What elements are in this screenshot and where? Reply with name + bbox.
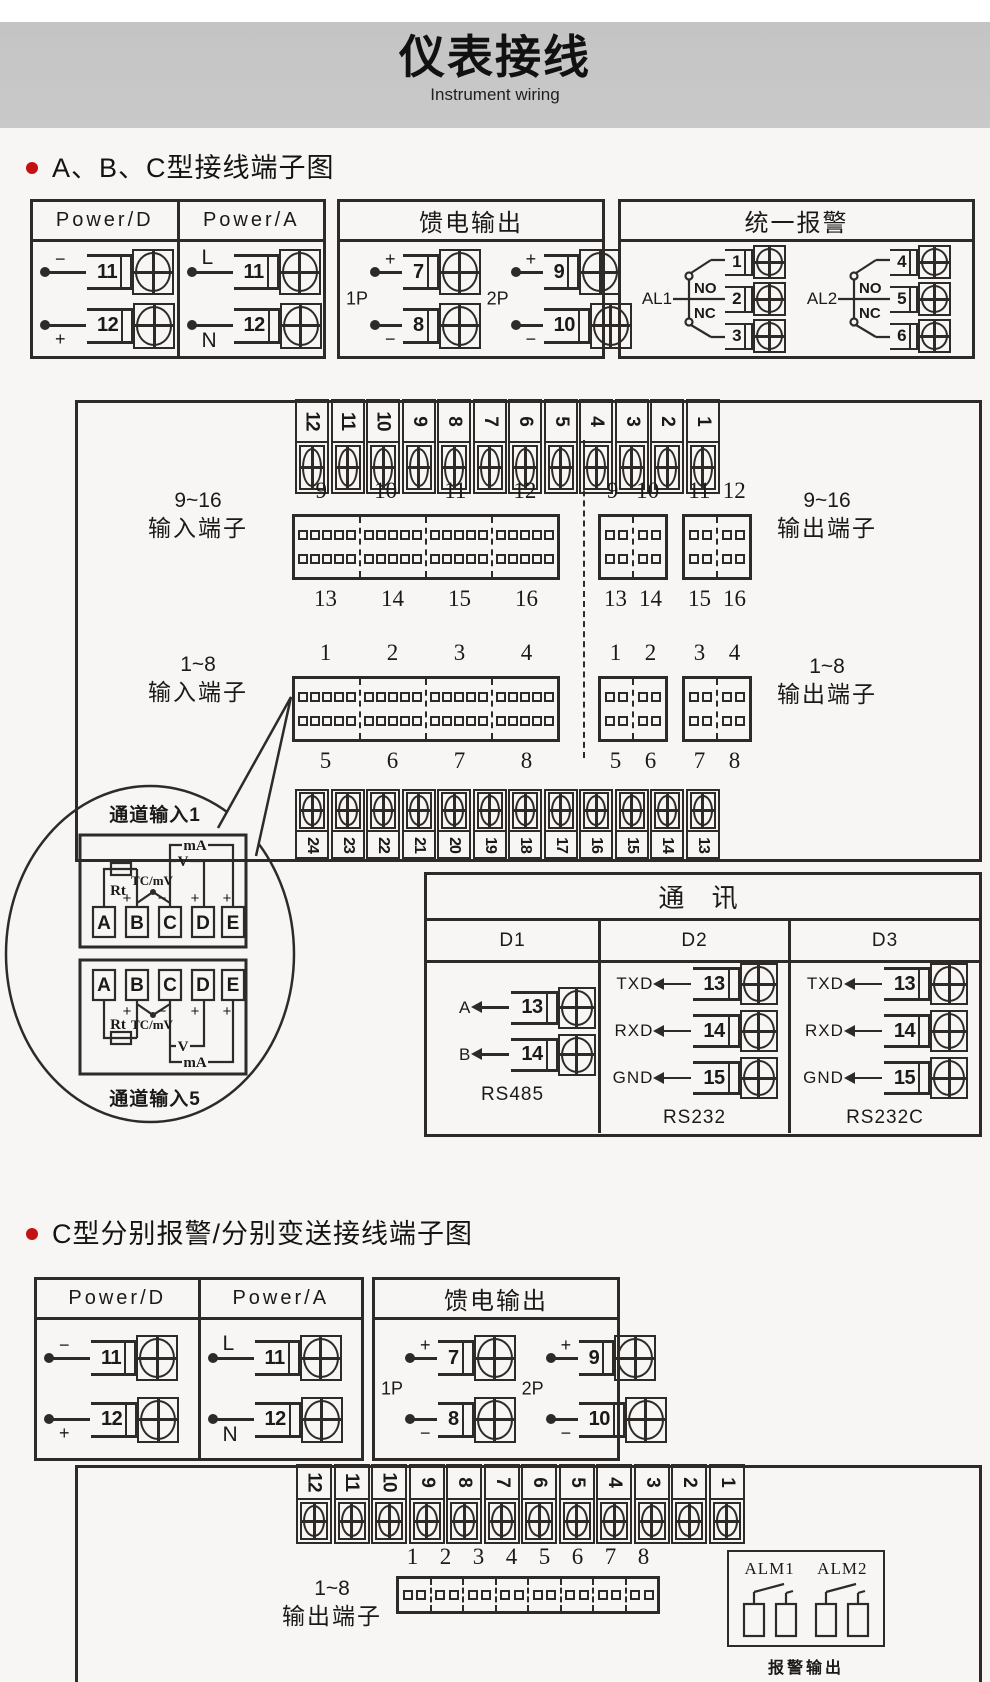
connector-pin	[689, 554, 699, 564]
group-tag: 2P	[487, 289, 509, 310]
connector-pin	[735, 716, 745, 726]
input-connector-9-16	[292, 514, 560, 580]
connector-pin	[514, 1590, 524, 1600]
power-a-column: L 11 N 12	[180, 242, 324, 356]
terminal-number: 12	[298, 1466, 330, 1500]
connector-pin	[478, 716, 488, 726]
screw-icon	[753, 319, 786, 353]
wire: L	[189, 271, 233, 274]
output-label-9-16: 9~16 输出端子	[742, 488, 912, 543]
terminal-bars	[918, 1017, 930, 1045]
connector-pin	[532, 554, 542, 564]
connector-pin	[500, 1590, 510, 1600]
strip-terminal: 16	[579, 789, 613, 859]
signal-label: TXD	[802, 974, 844, 994]
divider-dashed	[583, 440, 585, 758]
terminal-bars	[918, 1064, 930, 1092]
comm-d1: A13 B14 RS485	[427, 963, 601, 1133]
screw-icon	[510, 791, 540, 830]
terminal-number: 12	[91, 1408, 125, 1431]
comm-col-d1: D1	[427, 921, 601, 960]
bullet-icon	[26, 162, 38, 174]
connector-pin	[508, 716, 518, 726]
connector-pin	[346, 554, 356, 564]
signal-label: GND	[802, 1068, 844, 1088]
terminal-bars	[602, 1343, 614, 1373]
output-label-1-8: 1~8 输出端子	[742, 654, 912, 709]
connector-pin	[442, 530, 452, 540]
connector-pin	[346, 692, 356, 702]
connector-pin	[400, 692, 410, 702]
connector-pin	[651, 692, 661, 702]
channel-terminal-letter: A	[97, 975, 111, 996]
connector-pin	[532, 716, 542, 726]
connector-pin	[722, 692, 732, 702]
connector-pin	[520, 716, 530, 726]
connector-section	[601, 517, 634, 577]
terminal-bars	[909, 288, 918, 311]
wire: L	[210, 1357, 254, 1360]
terminal: 3	[725, 323, 753, 350]
unified-alarm-box: 统一报警 AL1 NO NC 1	[618, 199, 975, 359]
feed-output-box-c: 馈电输出 1P + 7 − 8 2P + 9	[372, 1277, 620, 1461]
terminal: 11	[255, 1340, 300, 1376]
terminal: 2	[725, 286, 753, 313]
power-a-title: Power/A	[180, 202, 324, 239]
connector-pin	[466, 554, 476, 564]
connector-pin	[310, 716, 320, 726]
relay-name: ALM1	[745, 1559, 795, 1579]
terminal-number: 3	[694, 640, 706, 666]
screw-icon	[486, 1500, 518, 1542]
terminal-number: 13	[511, 996, 545, 1019]
signal-label: RXD	[802, 1021, 844, 1041]
channel-input-5-label: 通道输入5	[75, 1084, 235, 1111]
connector-pin	[334, 692, 344, 702]
connector-section	[427, 517, 493, 577]
terminal-bars	[462, 1343, 474, 1373]
terminal-number: 14	[511, 1043, 545, 1066]
strip-terminal: 20	[437, 789, 471, 859]
connector-pin	[346, 716, 356, 726]
terminal-number: 1	[610, 640, 622, 666]
channel-terminal-letter: B	[130, 913, 144, 934]
terminal-number: 13	[693, 973, 727, 996]
comm-col-d3: D3	[791, 921, 979, 960]
connector-pin	[689, 530, 699, 540]
connector-pin	[702, 530, 712, 540]
strip-terminal: 7	[484, 1464, 520, 1544]
comm-d3: TXD13 RXD14 GND15 RS232C	[791, 963, 979, 1133]
terminal: 15	[693, 1061, 739, 1095]
terminal-number: 3	[636, 1466, 668, 1500]
terminal: 14	[884, 1014, 930, 1048]
terminal-bars	[578, 311, 590, 341]
terminal-row: L 11	[189, 249, 324, 295]
page-title: 仪表接线	[0, 30, 990, 85]
terminal-number: 11	[688, 478, 710, 504]
terminal-number: 7	[438, 1347, 462, 1370]
polarity-label: +	[123, 890, 132, 907]
comm-standard: RS232	[663, 1107, 726, 1129]
polarity-label: +	[223, 1003, 232, 1020]
screw-icon	[561, 1500, 593, 1542]
terminal-number: 5	[610, 748, 622, 774]
connector-pin	[412, 692, 422, 702]
wire-label: −	[385, 330, 396, 348]
terminal-bars	[728, 1017, 740, 1045]
terminal-number: 2	[645, 640, 657, 666]
label-line: 1~8	[272, 1576, 392, 1602]
connector-section	[685, 679, 718, 739]
feed-output-box: 馈电输出 1P + 7 − 8 2P + 9	[337, 199, 605, 359]
connector-pin	[388, 716, 398, 726]
connector-pin	[376, 530, 386, 540]
connector-pin	[430, 554, 440, 564]
relay-terminals: 1 2 3	[725, 245, 786, 353]
connector-pin	[364, 530, 374, 540]
label-line: 1~8	[742, 654, 912, 680]
terminal: 12	[234, 308, 280, 344]
wire: +	[548, 1357, 578, 1360]
pin-number-row: 78	[682, 748, 752, 774]
screw-icon	[918, 319, 951, 353]
pin-number-row: 12	[598, 640, 668, 666]
terminal-number: 15	[688, 586, 711, 612]
connector-pin	[546, 1590, 556, 1600]
power-box-body: − 11 + 12 L 11 N 12	[37, 1320, 361, 1458]
comm-standard: RS232C	[846, 1107, 924, 1129]
ma-label: mA	[183, 1055, 206, 1071]
terminal-number: 7	[605, 1544, 617, 1570]
tc-mv-label: TC/mV	[131, 1017, 174, 1032]
wire-label: −	[526, 330, 537, 348]
strip-terminal: 22	[366, 789, 400, 859]
strip-terminal: 15	[615, 789, 649, 859]
terminal-number: 8	[729, 748, 741, 774]
group-tag: 1P	[346, 289, 368, 310]
connector-pin	[651, 554, 661, 564]
terminal-number: 15	[693, 1067, 727, 1090]
connector-pin	[605, 554, 615, 564]
relay-al2: AL2 NO NC 4 5 6	[807, 245, 951, 353]
terminal-number: 6	[510, 401, 540, 443]
relay-al1: AL1 NO NC 1 2 3	[642, 245, 786, 353]
terminal: 5	[890, 286, 918, 313]
connector-pin	[364, 554, 374, 564]
alarm-output-caption: 报警输出	[727, 1654, 885, 1678]
screw-icon	[740, 1010, 778, 1052]
comm-d2: TXD13 RXD14 GND15 RS232	[601, 963, 791, 1133]
connector-pin	[478, 692, 488, 702]
terminal: 1	[725, 249, 753, 276]
terminal-number: 23	[333, 830, 363, 857]
connector-pin	[702, 692, 712, 702]
connector-pin	[638, 530, 648, 540]
connector-pin	[388, 554, 398, 564]
feed-group-2p: 2P + 9 − 10	[516, 1320, 667, 1458]
relay-contact-icon: NO NC	[673, 245, 725, 353]
terminal-number: 1	[711, 1466, 743, 1500]
connector-pin	[466, 692, 476, 702]
terminal-number: 13	[688, 830, 718, 857]
screw-icon	[132, 249, 174, 295]
terminal: 4	[890, 249, 918, 276]
wire-label: +	[420, 1336, 431, 1354]
terminal-number: 5	[539, 1544, 551, 1570]
wire-label: −	[561, 1424, 572, 1442]
connector-pin	[435, 1590, 445, 1600]
terminal-strip-bottom: 242322212019181716151413	[295, 789, 720, 859]
terminal-number: 16	[581, 830, 611, 857]
terminal-number: 22	[368, 830, 398, 857]
terminal: 8	[438, 1402, 474, 1438]
wire-label: −	[55, 250, 66, 268]
channel-terminal-letter: E	[227, 975, 240, 996]
connector-pin	[618, 716, 628, 726]
terminal-number: 10	[579, 1408, 613, 1431]
screw-icon	[439, 303, 481, 349]
terminal-number: 6	[523, 1466, 555, 1500]
feed-group-1p: 1P + 7 − 8	[340, 242, 481, 356]
power-box-header: Power/D Power/A	[33, 202, 323, 242]
terminal-number: 20	[439, 830, 469, 857]
wire: +	[513, 271, 543, 274]
unified-alarm-body: AL1 NO NC 1 2 3	[621, 242, 972, 356]
wire-label: N	[202, 330, 217, 351]
connector-pin	[638, 716, 648, 726]
terminal: 13	[693, 967, 739, 1001]
signal-label: RXD	[611, 1021, 653, 1041]
terminal-row: − 8	[372, 303, 481, 349]
terminal-bars	[267, 257, 279, 287]
comm-row: GND15	[802, 1057, 968, 1099]
feed-output-title: 馈电输出	[375, 1280, 617, 1320]
connector-pin	[532, 530, 542, 540]
terminal-row: + 9	[548, 1335, 667, 1381]
connector-pin	[532, 692, 542, 702]
relay-contact-icon: NO NC	[838, 245, 890, 353]
relay-tag: AL1	[642, 289, 672, 309]
connector-pin	[454, 692, 464, 702]
strip-terminal: 19	[473, 789, 507, 859]
strip-terminal: 2	[671, 1464, 707, 1544]
connector-pin	[298, 554, 308, 564]
connector-pin	[468, 1590, 478, 1600]
connector-pin	[430, 530, 440, 540]
connector-pin	[605, 692, 615, 702]
terminal: 7	[403, 254, 439, 290]
connector-pin	[508, 692, 518, 702]
arrow-left-icon	[657, 1030, 691, 1033]
terminal-number: 11	[91, 1347, 124, 1370]
v-label: V	[178, 1039, 189, 1055]
comm-row: A13	[429, 987, 595, 1029]
screw-icon	[137, 1397, 179, 1443]
terminal: 11	[234, 254, 279, 290]
header-band: 仪表接线 Instrument wiring	[0, 22, 990, 128]
wire: −	[407, 1418, 437, 1421]
channel-terminal-letter: B	[130, 975, 144, 996]
connector-pin	[618, 692, 628, 702]
alm2-relay: ALM2	[810, 1559, 874, 1638]
connector-pin	[520, 692, 530, 702]
wire: −	[42, 271, 86, 274]
wire: +	[42, 324, 86, 327]
connector-pin	[442, 554, 452, 564]
wire-label: L	[202, 247, 214, 268]
connector-pin	[644, 1590, 654, 1600]
comm-row: RXD14	[611, 1010, 777, 1052]
strip-terminal: 14	[650, 789, 684, 859]
terminal-bars	[288, 1343, 300, 1373]
terminal-number: 13	[314, 586, 337, 612]
screw-icon	[652, 791, 682, 830]
terminal-number: 2	[440, 1544, 452, 1570]
connector-section	[493, 517, 557, 577]
polarity-label: +	[191, 1003, 200, 1020]
connector-pin	[702, 554, 712, 564]
connector-pin	[322, 692, 332, 702]
terminal-bars	[427, 311, 439, 341]
terminal-number: 11	[336, 1466, 368, 1500]
strip-terminal: 17	[544, 789, 578, 859]
screw-icon	[614, 1335, 656, 1381]
connector-pin	[689, 692, 699, 702]
connector-pin	[702, 716, 712, 726]
screw-icon	[368, 791, 398, 830]
terminal-number: 6	[890, 326, 909, 346]
page-subtitle: Instrument wiring	[0, 85, 990, 105]
terminal-bars	[120, 257, 132, 287]
channel-terminal-letter: E	[227, 913, 240, 934]
terminal-bars	[909, 251, 918, 274]
connector-pin	[466, 716, 476, 726]
screw-icon	[404, 791, 434, 830]
unified-alarm-title: 统一报警	[621, 202, 972, 242]
feed-output-body: 1P + 7 − 8 2P + 9	[375, 1320, 617, 1458]
connector-pin	[310, 530, 320, 540]
strip-terminal: 5	[559, 1464, 595, 1544]
terminal-number: 4	[506, 1544, 518, 1570]
connector-pin	[442, 716, 452, 726]
connector-pin	[544, 530, 554, 540]
strip-terminal: 8	[446, 1464, 482, 1544]
connector-pin	[508, 530, 518, 540]
connector-pin	[454, 554, 464, 564]
strip-terminal: 13	[686, 789, 720, 859]
channel-terminal-letter: D	[196, 913, 210, 934]
terminal-number: 3	[617, 401, 647, 443]
screw-icon	[598, 1500, 630, 1542]
screw-icon	[474, 1335, 516, 1381]
channel-terminal-letter: A	[97, 913, 111, 934]
connector-pin	[322, 554, 332, 564]
connector-section	[295, 517, 361, 577]
terminal: 11	[91, 1340, 136, 1376]
terminal-number: 14	[652, 830, 682, 857]
connector-pin	[565, 1590, 575, 1600]
screw-icon	[688, 791, 718, 830]
connector-pin	[544, 554, 554, 564]
terminal-row: 5	[890, 282, 951, 316]
connector-pin	[630, 1590, 640, 1600]
arrow-left-icon	[848, 1077, 882, 1080]
terminal-row: L 11	[210, 1335, 362, 1381]
terminal: 12	[255, 1402, 301, 1438]
terminal-bars	[744, 288, 753, 311]
channel-terminal-letter: C	[163, 913, 177, 934]
connector-pin	[416, 1590, 426, 1600]
wire-label: +	[59, 1424, 70, 1442]
terminal-number: 8	[438, 1408, 462, 1431]
terminal: 7	[438, 1340, 474, 1376]
connector-pin	[466, 530, 476, 540]
screw-icon	[546, 791, 576, 830]
terminal: 13	[884, 967, 930, 1001]
screw-icon	[373, 1500, 405, 1542]
connector-pin	[638, 554, 648, 564]
terminal-row: − 8	[407, 1397, 516, 1443]
terminal-number: 9	[411, 1466, 443, 1500]
terminal-number: 11	[333, 401, 363, 443]
connector-pin	[298, 530, 308, 540]
channel-wiring-diagram-1: Rt TC/mV V mA + − + + A B C D E	[78, 833, 248, 949]
terminal-number: 8	[448, 1466, 480, 1500]
comm-row: GND15	[611, 1057, 777, 1099]
connector-pin	[412, 554, 422, 564]
section-heading-c-type: C型分别报警/分别变送接线端子图	[52, 1212, 473, 1251]
arrow-left-icon	[657, 1077, 691, 1080]
channel-wiring-diagram-5: Rt TC/mV V mA + − + + A B C D E	[78, 958, 248, 1076]
no-label: NO	[694, 280, 717, 297]
connector-section	[634, 679, 665, 739]
label-line: 输出端子	[742, 680, 912, 709]
screw-icon	[673, 1500, 705, 1542]
terminal-row: + 7	[407, 1335, 516, 1381]
connector-section	[627, 1579, 658, 1611]
screw-icon	[930, 963, 968, 1005]
terminal-bars	[546, 994, 558, 1022]
terminal-number: 14	[639, 586, 662, 612]
pin-number-row: 1516	[682, 586, 752, 612]
terminal-number: 12	[513, 478, 536, 504]
connector-pin	[478, 554, 488, 564]
connector-pin	[496, 716, 506, 726]
pin-number-row: 1234	[292, 640, 560, 666]
comm-title: 通 讯	[427, 875, 979, 921]
terminal-number: 9	[544, 261, 568, 284]
polarity-label: +	[191, 890, 200, 907]
connector-pin	[496, 692, 506, 702]
terminal-number: 14	[381, 586, 404, 612]
wire: −	[46, 1357, 90, 1360]
terminal-number: 3	[454, 640, 466, 666]
power-d-title: Power/D	[37, 1280, 201, 1317]
label-line: 输入端子	[118, 514, 278, 543]
terminal-number: 16	[723, 586, 746, 612]
v-label: V	[178, 854, 189, 870]
strip-terminal: 18	[508, 789, 542, 859]
terminal-number: 11	[87, 261, 120, 284]
polarity-label: +	[223, 890, 232, 907]
terminal-number: 11	[234, 261, 267, 284]
terminal-number: 10	[368, 401, 398, 443]
terminal-number: 7	[475, 401, 505, 443]
terminal: 15	[884, 1061, 930, 1095]
terminal-number: 4	[729, 640, 741, 666]
terminal-number: 11	[444, 478, 466, 504]
